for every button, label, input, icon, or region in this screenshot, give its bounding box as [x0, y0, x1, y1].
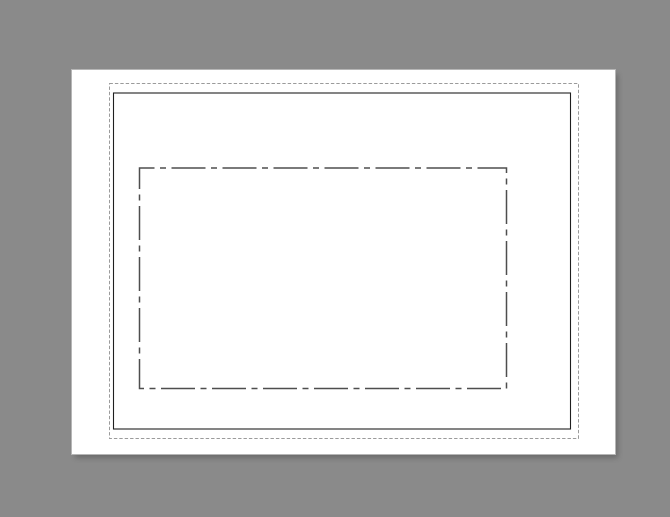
- placeholder-outline-rect[interactable]: [140, 168, 507, 389]
- screenshot-root: { "workspace": { "background_color": "#8…: [0, 0, 670, 517]
- margin-guide-rect: [110, 84, 579, 439]
- editor-workspace: [0, 0, 670, 517]
- page-frame-rect: [114, 93, 571, 429]
- document-page[interactable]: [72, 70, 615, 454]
- page-overlay: [72, 70, 615, 454]
